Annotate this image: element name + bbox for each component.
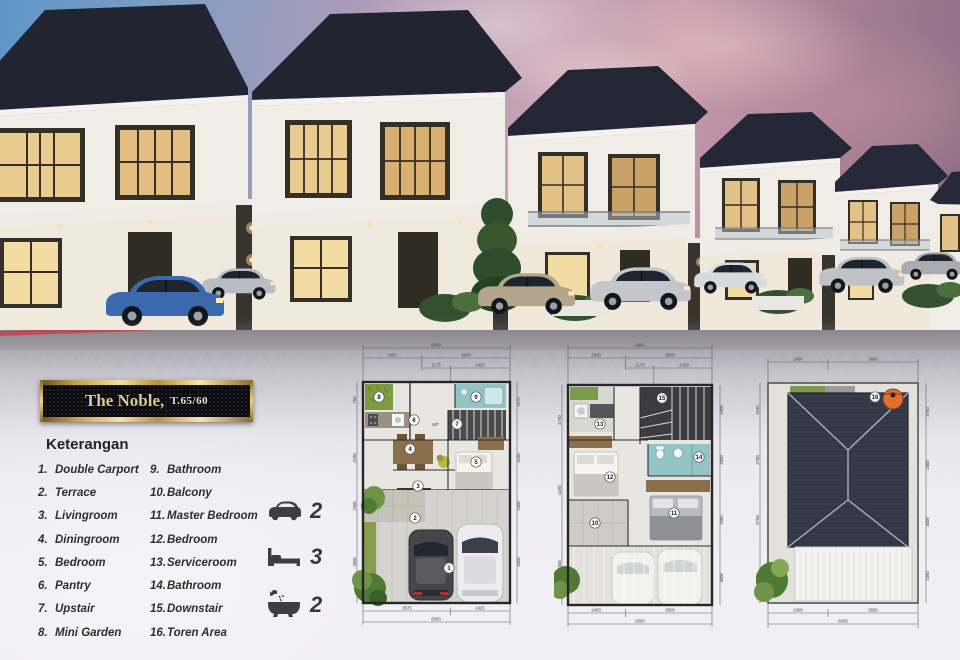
floor-plan-ground: 6000 2400 3600 1175 2425 3575 2425 6000 …	[352, 340, 530, 658]
carport-count: 2	[266, 498, 336, 524]
legend-label: Pantry	[55, 580, 91, 592]
dim-label: 1175	[635, 363, 645, 368]
legend-number: 16.	[150, 627, 167, 639]
dim-label: 6000	[635, 619, 645, 624]
bathroom-value: 2	[310, 592, 322, 618]
legend-item: 5.Bedroom	[38, 551, 139, 574]
legend-number: 3.	[38, 510, 55, 522]
legend-label: Terrace	[55, 487, 96, 499]
legend-number: 15.	[150, 603, 167, 615]
legend-label: Diningroom	[55, 534, 120, 546]
legend-label: Serviceroom	[167, 557, 237, 569]
dim-label: 3600	[868, 357, 878, 362]
dim-label: 6000	[431, 343, 441, 348]
shelf	[568, 436, 612, 448]
dim-label: 1575	[516, 397, 521, 407]
legend-label: Livingroom	[55, 510, 118, 522]
room-number: 10	[592, 521, 599, 527]
dim-label: 4250	[557, 485, 562, 495]
dim-label: 3250	[516, 453, 521, 463]
legend-number: 4.	[38, 534, 55, 546]
legend-number: 1.	[38, 464, 55, 476]
room-number: 14	[696, 455, 703, 461]
dim-label: 2000	[719, 455, 724, 465]
dim-label: 3000	[719, 573, 724, 583]
legend-label: Downstair	[167, 603, 223, 615]
legend-item: 4.Diningroom	[38, 528, 139, 551]
legend-item: 6.Pantry	[38, 574, 139, 597]
project-name-badge: The Noble, T.65/60	[40, 380, 253, 422]
dim-label: 2450	[925, 571, 930, 581]
legend-number: 14.	[150, 580, 167, 592]
dim-label: 3500	[352, 557, 357, 567]
legend-item: 3.Livingroom	[38, 505, 139, 528]
dim-label: 6000	[838, 619, 848, 624]
dim-label: 3600	[665, 608, 675, 613]
carport-value: 2	[310, 498, 322, 524]
dim-label: 4250	[352, 453, 357, 463]
townhouse-photo	[0, 0, 960, 350]
legend-number: 5.	[38, 557, 55, 569]
dim-label: 3600	[868, 608, 878, 613]
dim-label: 5750	[755, 515, 760, 525]
dim-label: 1500	[516, 501, 521, 511]
water-toren	[883, 389, 903, 409]
dim-label: 750	[352, 396, 357, 404]
bedroom-count: 3	[266, 544, 336, 570]
dim-label: 1500	[352, 501, 357, 511]
room-number: 11	[671, 511, 678, 517]
room-number: 12	[607, 475, 614, 481]
legend-label: Balcony	[167, 487, 212, 499]
dim-label: 2425	[475, 606, 485, 611]
dim-label: 1540	[755, 405, 760, 415]
wardrobe	[478, 437, 504, 450]
bathroom-count: 2	[266, 590, 336, 620]
dim-label: 3750	[925, 407, 930, 417]
legend-number: 9.	[150, 464, 167, 476]
legend-number: 7.	[38, 603, 55, 615]
brochure: The Noble, T.65/60 Keterangan 1.Double C…	[0, 0, 960, 660]
bed-icon	[266, 546, 302, 568]
staircase	[640, 387, 712, 440]
room-number: 16	[872, 395, 879, 401]
dim-label: 2400	[591, 608, 601, 613]
dim-label: 2700	[755, 455, 760, 465]
legend-label: Bedroom	[55, 557, 105, 569]
bedroom-value: 3	[310, 544, 322, 570]
room-number: 13	[597, 422, 604, 428]
legend-label: Upstair	[55, 603, 95, 615]
legend-label: Bathroom	[167, 464, 221, 476]
legend-label: Bedroom	[167, 534, 217, 546]
plan-body	[554, 385, 712, 605]
floor-plan-upper: 6000 2400 3600 1175 2425 2400 3600 6000 …	[554, 340, 734, 658]
legend-number: 11.	[150, 510, 167, 522]
car-top-white	[457, 524, 503, 602]
gold-bar	[250, 380, 253, 422]
stair-direction-label: DN	[642, 395, 649, 400]
room-number: 15	[659, 396, 666, 402]
legend-column-1: 1.Double Carport 2.Terrace 3.Livingroom …	[38, 458, 139, 644]
legend-label: Mini Garden	[55, 627, 121, 639]
dim-label: 3000	[925, 517, 930, 527]
legend-number: 10.	[150, 487, 167, 499]
project-title: The Noble,	[85, 391, 164, 411]
dim-label: 6000	[635, 343, 645, 348]
plan-body	[352, 382, 510, 606]
ghost-car	[612, 552, 654, 604]
legend-number: 12.	[150, 534, 167, 546]
dim-label: 2750	[557, 415, 562, 425]
car-icon	[266, 500, 302, 522]
legend-label: Bathroom	[167, 580, 221, 592]
stair-direction-label: UP	[432, 422, 438, 427]
dim-label: 3575	[402, 606, 412, 611]
legend-number: 6.	[38, 580, 55, 592]
gold-bar	[40, 417, 253, 422]
project-type: T.65/60	[170, 395, 208, 407]
dim-label: 3500	[719, 515, 724, 525]
legend-number: 2.	[38, 487, 55, 499]
gold-bar	[40, 380, 43, 422]
dim-label: 3600	[665, 353, 675, 358]
legend-item: 7.Upstair	[38, 598, 139, 621]
dim-label: 2400	[591, 353, 601, 358]
legend-item: 2.Terrace	[38, 481, 139, 504]
dim-label: 2425	[475, 363, 485, 368]
legend-item: 1.Double Carport	[38, 458, 139, 481]
legend-label: Master Bedroom	[167, 510, 258, 522]
legend-label: Toren Area	[167, 627, 227, 639]
dim-label: 1500	[719, 405, 724, 415]
unit-stats: 2 3 2	[266, 498, 336, 640]
dim-label: 2400	[793, 357, 803, 362]
dim-label: 2400	[793, 608, 803, 613]
legend-label: Double Carport	[55, 464, 139, 476]
legend-item: 8.Mini Garden	[38, 621, 139, 644]
dim-label: 1175	[431, 363, 441, 368]
dim-label: 2800	[925, 460, 930, 470]
room-markers: 16	[870, 392, 880, 402]
dim-label: 2400	[387, 353, 397, 358]
wardrobe	[646, 480, 710, 492]
legend-heading: Keterangan	[46, 436, 129, 453]
carport-canopy	[795, 547, 912, 601]
legend-number: 13.	[150, 557, 167, 569]
gold-bar	[40, 380, 253, 385]
ghost-car	[658, 549, 702, 605]
roof-plan: 2400 3600 2400 3600 6000 1540 2700 5750 …	[750, 350, 950, 655]
legend-number: 8.	[38, 627, 55, 639]
dim-label: 3600	[461, 353, 471, 358]
plan-body	[754, 383, 918, 603]
dim-label: 6000	[431, 617, 441, 622]
legend-item: 9.Bathroom	[150, 458, 290, 481]
dim-label: 4000	[516, 557, 521, 567]
dim-label: 2425	[679, 363, 689, 368]
hip-roof	[788, 393, 908, 547]
bathtub-icon	[266, 590, 302, 620]
